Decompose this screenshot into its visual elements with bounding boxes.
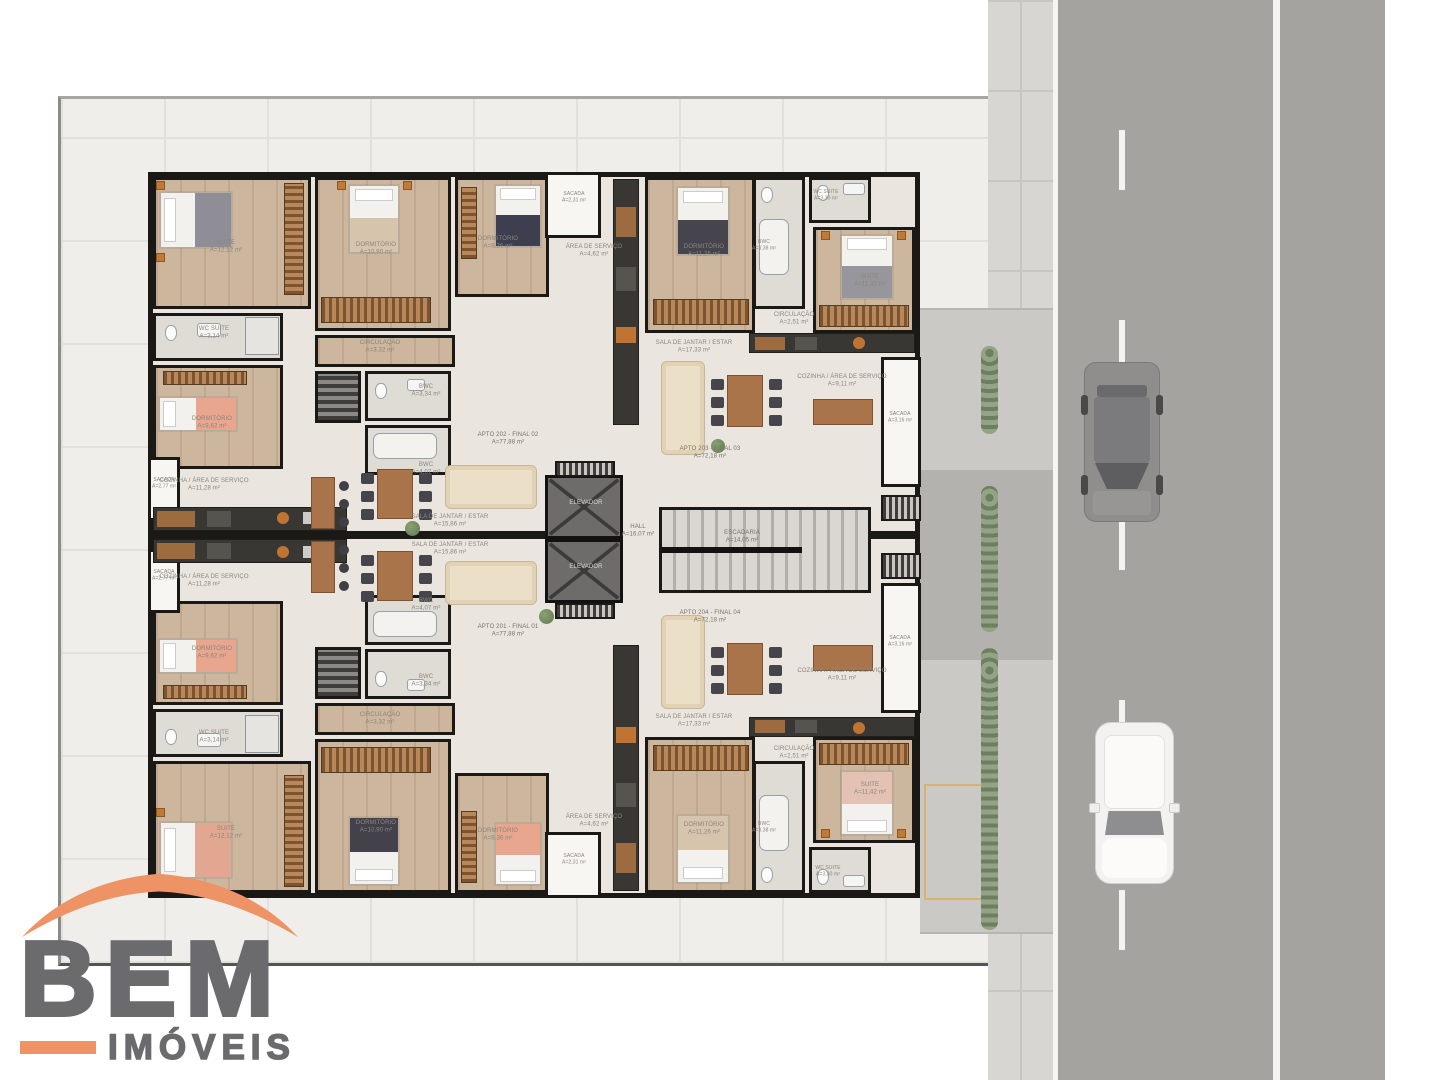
car-windshield [1105,811,1164,835]
label-wcsuite-bl: WC SUITE A=3,14 m² [169,729,259,744]
road-edge-line [1053,0,1058,1080]
label-sala-tr: SALA DE JANTAR / ESTAR A=17,33 m² [649,339,739,354]
brand-logo: BEM IMÓVEIS [20,870,320,1068]
stove-burner [277,512,289,524]
chair [711,397,724,408]
label-elevator-1: ELEVADOR [553,499,619,507]
gray-car-top-view [1084,362,1160,522]
label-sala-br: SALA DE JANTAR / ESTAR A=17,33 m² [649,713,739,728]
label-bwc2-bl: BWC A=4,07 m² [381,597,471,612]
car-rear-window [1097,385,1147,397]
label-dorm-br: DORMITÓRIO A=11,26 m² [659,821,749,836]
nightstand [821,829,830,838]
label-circ-tl: CIRCULAÇÃO A=3,32 m² [335,339,425,354]
wardrobe [653,745,749,771]
hedge-middle [981,486,998,632]
chair [711,379,724,390]
label-dorm1-bl: DORMITÓRIO A=10,90 m² [331,819,421,834]
label-wcsuite-tr: WC SUITE A=3,30 m² [801,189,851,202]
logo-accent-bar [20,1041,96,1054]
cabinet [157,511,195,527]
screenshot-stage: SUITE A=12,12 m² DORMITÓRIO A=10,90 m² D… [0,0,1440,1080]
label-wc-tr: BWC A=3,38 m² [739,239,789,252]
car-roof [1094,397,1150,463]
label-stairs: ESCADARIA A=14,05 m² [697,529,787,544]
shaft-tl [315,371,361,423]
stool [339,581,349,591]
nightstand [897,829,906,838]
nightstand [156,181,165,190]
chair [361,473,374,484]
chair [361,573,374,584]
stove [616,327,636,343]
label-unit-tl: APTO 202 - FINAL 02 A=77,88 m² [463,431,553,446]
stove-burner [853,337,865,349]
bathtub [373,433,437,459]
label-unit-bl: APTO 201 - FINAL 01 A=77,88 m² [463,623,553,638]
stool [339,517,349,527]
nightstand [156,253,165,262]
dining-table [727,643,763,695]
stool [339,545,349,555]
label-dorm3-bl: DORMITÓRIO A=9,62 m² [167,645,257,660]
label-wc-br: BWC A=3,38 m² [739,821,789,834]
label-sala-tl: SALA DE JANTAR / ESTAR A=15,86 m² [405,513,495,528]
nightstand [337,181,346,190]
hedge-top [981,346,998,434]
chair [711,647,724,658]
car-roof [1104,735,1165,809]
duct-right-2 [881,553,921,579]
label-suite-tr: SUITE A=11,42 m² [825,273,915,288]
road [1058,0,1385,1080]
label-dorm2-bl: DORMITÓRIO A=9,36 m² [453,827,543,842]
staircase [659,507,871,593]
elevator-grill-top [555,461,615,477]
wardrobe [284,183,304,295]
chair [419,491,432,502]
dining-table [377,469,413,519]
toilet [761,867,773,883]
balcony-right-bottom [881,583,921,713]
chair [361,491,374,502]
elevator-shaft-2 [545,539,623,603]
stool [339,499,349,509]
floor-plan: SUITE A=12,12 m² DORMITÓRIO A=10,90 m² D… [148,172,920,898]
appliance [207,511,231,527]
label-suite-bl: SUITE A=12,12 m² [181,825,271,840]
appliance [795,337,817,350]
desk [461,811,477,883]
label-unit-br: APTO 204 - FINAL 04 A=72,18 m² [665,609,755,624]
stove-burner [277,546,289,558]
chair [769,647,782,658]
elevator-grill-bottom [555,603,615,619]
nightstand [403,181,412,190]
chair [769,379,782,390]
chair [361,555,374,566]
chair [419,573,432,584]
stove [616,727,636,743]
label-servico-bl: ÁREA DE SERVIÇO A=4,62 m² [549,813,639,828]
label-suite-br: SUITE A=11,42 m² [825,781,915,796]
nightstand [821,231,830,240]
wardrobe [321,747,431,773]
white-car-top-view [1095,722,1174,884]
label-cozinha-tr: COZINHA / ÁREA DE SERVIÇO A=9,11 m² [797,373,887,388]
car-hood [1102,838,1167,878]
car-wheel [1156,475,1163,495]
label-bwc1-bl: BWC A=3,34 m² [381,673,471,688]
appliance [616,783,636,807]
chair [769,683,782,694]
toilet [761,187,773,203]
label-bwc2-tl: BWC A=4,07 m² [381,461,471,476]
desk [163,685,247,699]
chair [769,415,782,426]
party-wall-left [153,531,545,539]
cabinet [616,843,636,873]
duct-right-1 [881,495,921,521]
dining-table [727,375,763,427]
label-dorm1-tl: DORMITÓRIO A=10,90 m² [331,241,421,256]
car-hood [1093,491,1151,515]
bed-double [841,235,893,299]
chair [711,665,724,676]
label-balcony-right-bottom: SACADA A=3,16 m² [875,635,925,648]
chair [769,665,782,676]
label-circ-bl: CIRCULAÇÃO A=3,32 m² [335,711,425,726]
appliance [616,267,636,291]
party-wall-right [869,531,915,539]
chair [361,591,374,602]
balcony-top [545,172,601,238]
label-dorm3-tl: DORMITÓRIO A=9,62 m² [167,415,257,430]
label-sala-bl: SALA DE JANTAR / ESTAR A=15,86 m² [405,541,495,556]
label-balcony-right-top: SACADA A=3,16 m² [875,411,925,424]
bar-island-tl [311,477,335,529]
wardrobe [321,297,431,323]
chair [711,683,724,694]
car-wheel [1156,395,1163,415]
stool [339,481,349,491]
car-wheel [1081,475,1088,495]
cabinet [616,207,636,237]
label-balcony-bottom: SACADA A=2,31 m² [549,853,599,866]
label-elevator-2: ELEVADOR [553,563,619,571]
road-lane-line [1273,0,1280,1080]
car-windshield [1095,463,1149,489]
label-bwc1-tl: BWC A=3,34 m² [381,383,471,398]
stair-rail [662,547,802,553]
label-cozinha-br: COZINHA / ÁREA DE SERVIÇO A=9,11 m² [797,667,887,682]
label-wcsuite-tl: WC SUITE A=3,14 m² [169,325,259,340]
road-center-dashed-line [1119,0,1125,1080]
logo-text-main: BEM [20,937,320,1022]
plant [539,609,554,624]
shaft-bl [315,647,361,699]
label-suite-tl: SUITE A=12,12 m² [181,239,271,254]
bar-island-bl [311,541,335,593]
stove-burner [853,722,865,734]
label-balcony-left-bottom: SACADA A=2,77 m² [139,569,189,582]
sofa [661,615,705,709]
car-mirror [1089,803,1100,813]
label-servico-tl: ÁREA DE SERVIÇO A=4,62 m² [549,243,639,258]
stool [339,563,349,573]
label-circ-tr: CIRCULAÇÃO A=2,51 m² [749,311,839,326]
label-dorm2-tl: DORMITÓRIO A=9,36 m² [453,235,543,250]
car-wheel [1081,395,1088,415]
label-dorm-tr: DORMITÓRIO A=11,26 m² [659,243,749,258]
chair [769,397,782,408]
appliance [795,720,817,733]
hedge-bottom [981,648,998,930]
cabinet [157,543,195,559]
label-balcony-top: SACADA A=2,31 m² [549,191,599,204]
dining-table [377,551,413,601]
sideboard [813,399,873,425]
label-unit-tr: APTO 203 - FINAL 03 A=72,18 m² [665,445,755,460]
cabinet [755,337,785,350]
label-wcsuite-br: WC SUITE A=3,30 m² [803,865,853,878]
chair [419,555,432,566]
chair [711,415,724,426]
cabinet [755,720,785,733]
label-hall: HALL A=16,07 m² [593,523,683,538]
sofa [661,361,705,455]
logo-text-sub: IMÓVEIS [108,1028,296,1068]
desk [163,371,247,385]
nightstand [156,808,165,817]
wardrobe [653,299,749,325]
chair [361,509,374,520]
label-balcony-left-top: SACADA A=2,77 m² [139,477,189,490]
label-circ-br: CIRCULAÇÃO A=2,51 m² [749,745,839,760]
car-mirror [1169,803,1180,813]
bathtub [373,611,437,637]
nightstand [897,231,906,240]
appliance [207,543,231,559]
